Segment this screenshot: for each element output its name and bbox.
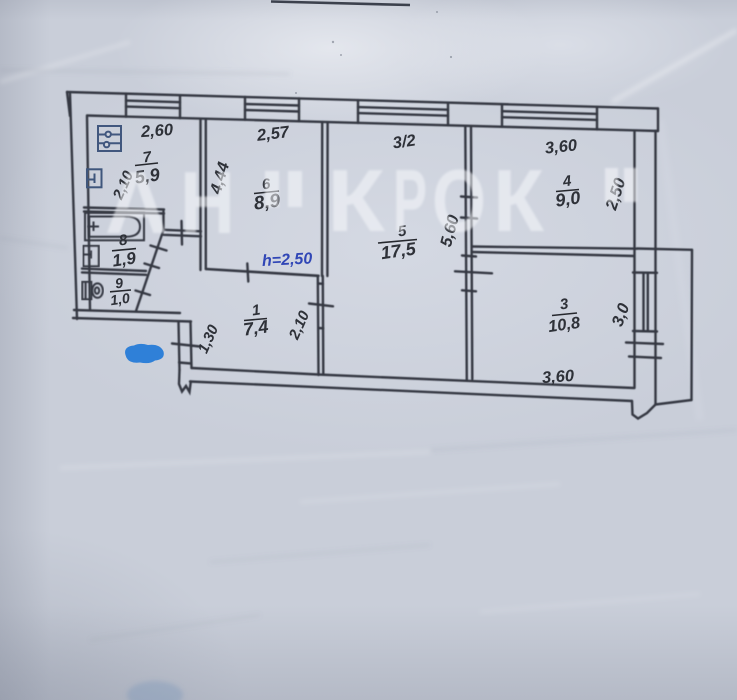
svg-text:1,30: 1,30: [195, 322, 223, 356]
svg-text:А: А: [105, 153, 168, 252]
svg-text:2,60: 2,60: [139, 121, 174, 141]
svg-text:Н: Н: [180, 153, 235, 252]
svg-text:О: О: [432, 151, 486, 250]
svg-text:2,57: 2,57: [255, 123, 291, 145]
svg-text:2,10: 2,10: [285, 308, 313, 343]
svg-text:3,0: 3,0: [609, 300, 634, 328]
svg-text:К: К: [493, 151, 544, 250]
svg-text:К: К: [327, 151, 385, 250]
svg-text:3,60: 3,60: [544, 136, 579, 157]
svg-text:9: 9: [114, 275, 124, 292]
svg-text:Р: Р: [393, 151, 427, 250]
svg-text:10,8: 10,8: [547, 314, 582, 336]
svg-text:1,0: 1,0: [109, 290, 131, 309]
svg-text:3/2: 3/2: [392, 131, 417, 152]
svg-text:3,60: 3,60: [541, 367, 575, 387]
svg-text:7,4: 7,4: [242, 316, 270, 339]
svg-text:h=2,50: h=2,50: [262, 250, 313, 270]
svg-text:3: 3: [559, 295, 570, 313]
svg-text:9,0: 9,0: [554, 187, 582, 210]
